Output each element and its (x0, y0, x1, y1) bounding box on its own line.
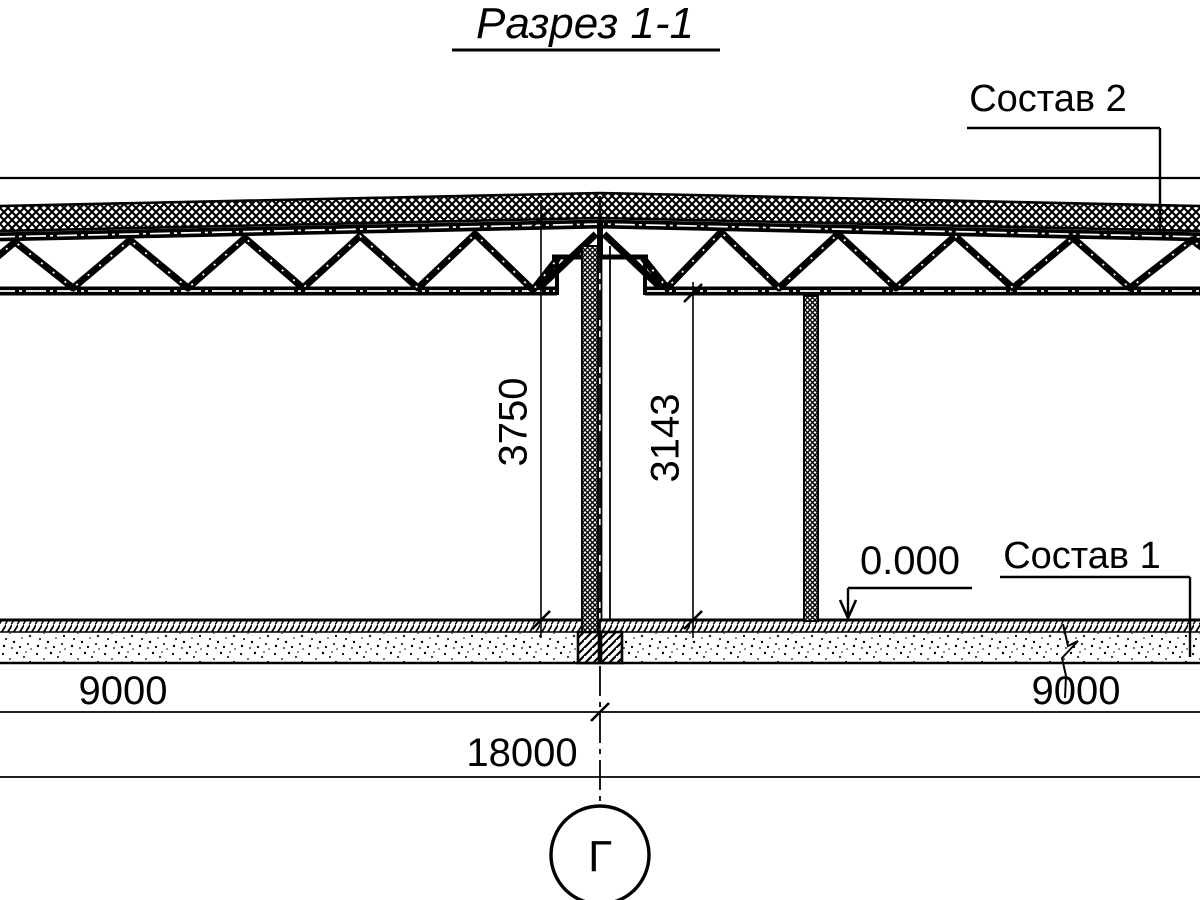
dim-3750: 3750 (492, 200, 550, 638)
dim-3143-value: 3143 (644, 394, 688, 483)
level-value: 0.000 (860, 539, 960, 583)
drawing-title: Разрез 1-1 (452, 0, 720, 50)
level-mark-0000: 0.000 (840, 539, 972, 618)
drawing-title-text: Разрез 1-1 (476, 0, 694, 48)
dim-9000-left-value: 9000 (79, 669, 168, 713)
drawing-canvas: 3750 3143 0.000 Состав 1 Состав 2 9000 9… (0, 0, 1200, 900)
dim-9000-right-value: 9000 (1032, 669, 1121, 713)
dim-18000-value: 18000 (466, 731, 577, 775)
axis-bubble: Г (551, 806, 649, 900)
right-column (804, 296, 818, 621)
axis-label: Г (588, 832, 612, 881)
center-column (582, 246, 610, 632)
section-drawing: 3750 3143 0.000 Состав 1 Состав 2 9000 9… (0, 0, 1200, 900)
truss-diagonals-right (643, 232, 1200, 288)
callout-sostav-2-label: Состав 2 (969, 78, 1127, 120)
dim-3143: 3143 (644, 282, 702, 638)
dim-3750-value: 3750 (492, 378, 536, 467)
truss-diagonals-left (0, 234, 558, 290)
callout-sostav-1-label: Состав 1 (1003, 535, 1161, 577)
